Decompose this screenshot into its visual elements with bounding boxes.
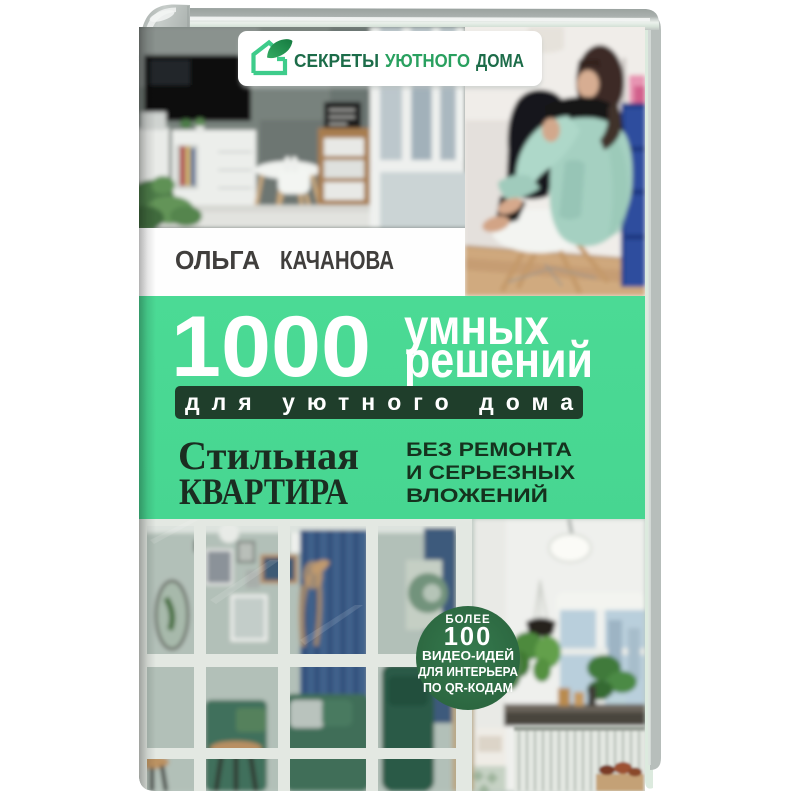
- svg-text:ДОМА: ДОМА: [476, 50, 524, 71]
- svg-text:И СЕРЬЕЗНЫХ: И СЕРЬЕЗНЫХ: [406, 463, 575, 484]
- svg-text:УЮТНОГО: УЮТНОГО: [385, 50, 470, 71]
- svg-text:ВЛОЖЕНИЙ: ВЛОЖЕНИЙ: [406, 485, 548, 507]
- svg-text:ДЛЯ ИНТЕРЬЕРА: ДЛЯ ИНТЕРЬЕРА: [418, 664, 519, 679]
- svg-text:ВИДЕО-ИДЕЙ: ВИДЕО-ИДЕЙ: [422, 648, 514, 663]
- svg-text:СЕКРЕТЫ: СЕКРЕТЫ: [294, 50, 379, 71]
- svg-text:100: 100: [444, 623, 493, 651]
- svg-text:решений: решений: [404, 332, 593, 388]
- svg-text:ОЛЬГА: ОЛЬГА: [175, 245, 260, 275]
- svg-text:1000: 1000: [171, 299, 371, 395]
- svg-text:БЕЗ РЕМОНТА: БЕЗ РЕМОНТА: [406, 440, 572, 461]
- svg-text:КВАРТИРА: КВАРТИРА: [179, 472, 348, 513]
- svg-text:ПО QR-КОДАМ: ПО QR-КОДАМ: [423, 680, 513, 695]
- svg-text:КАЧАНОВА: КАЧАНОВА: [280, 245, 394, 275]
